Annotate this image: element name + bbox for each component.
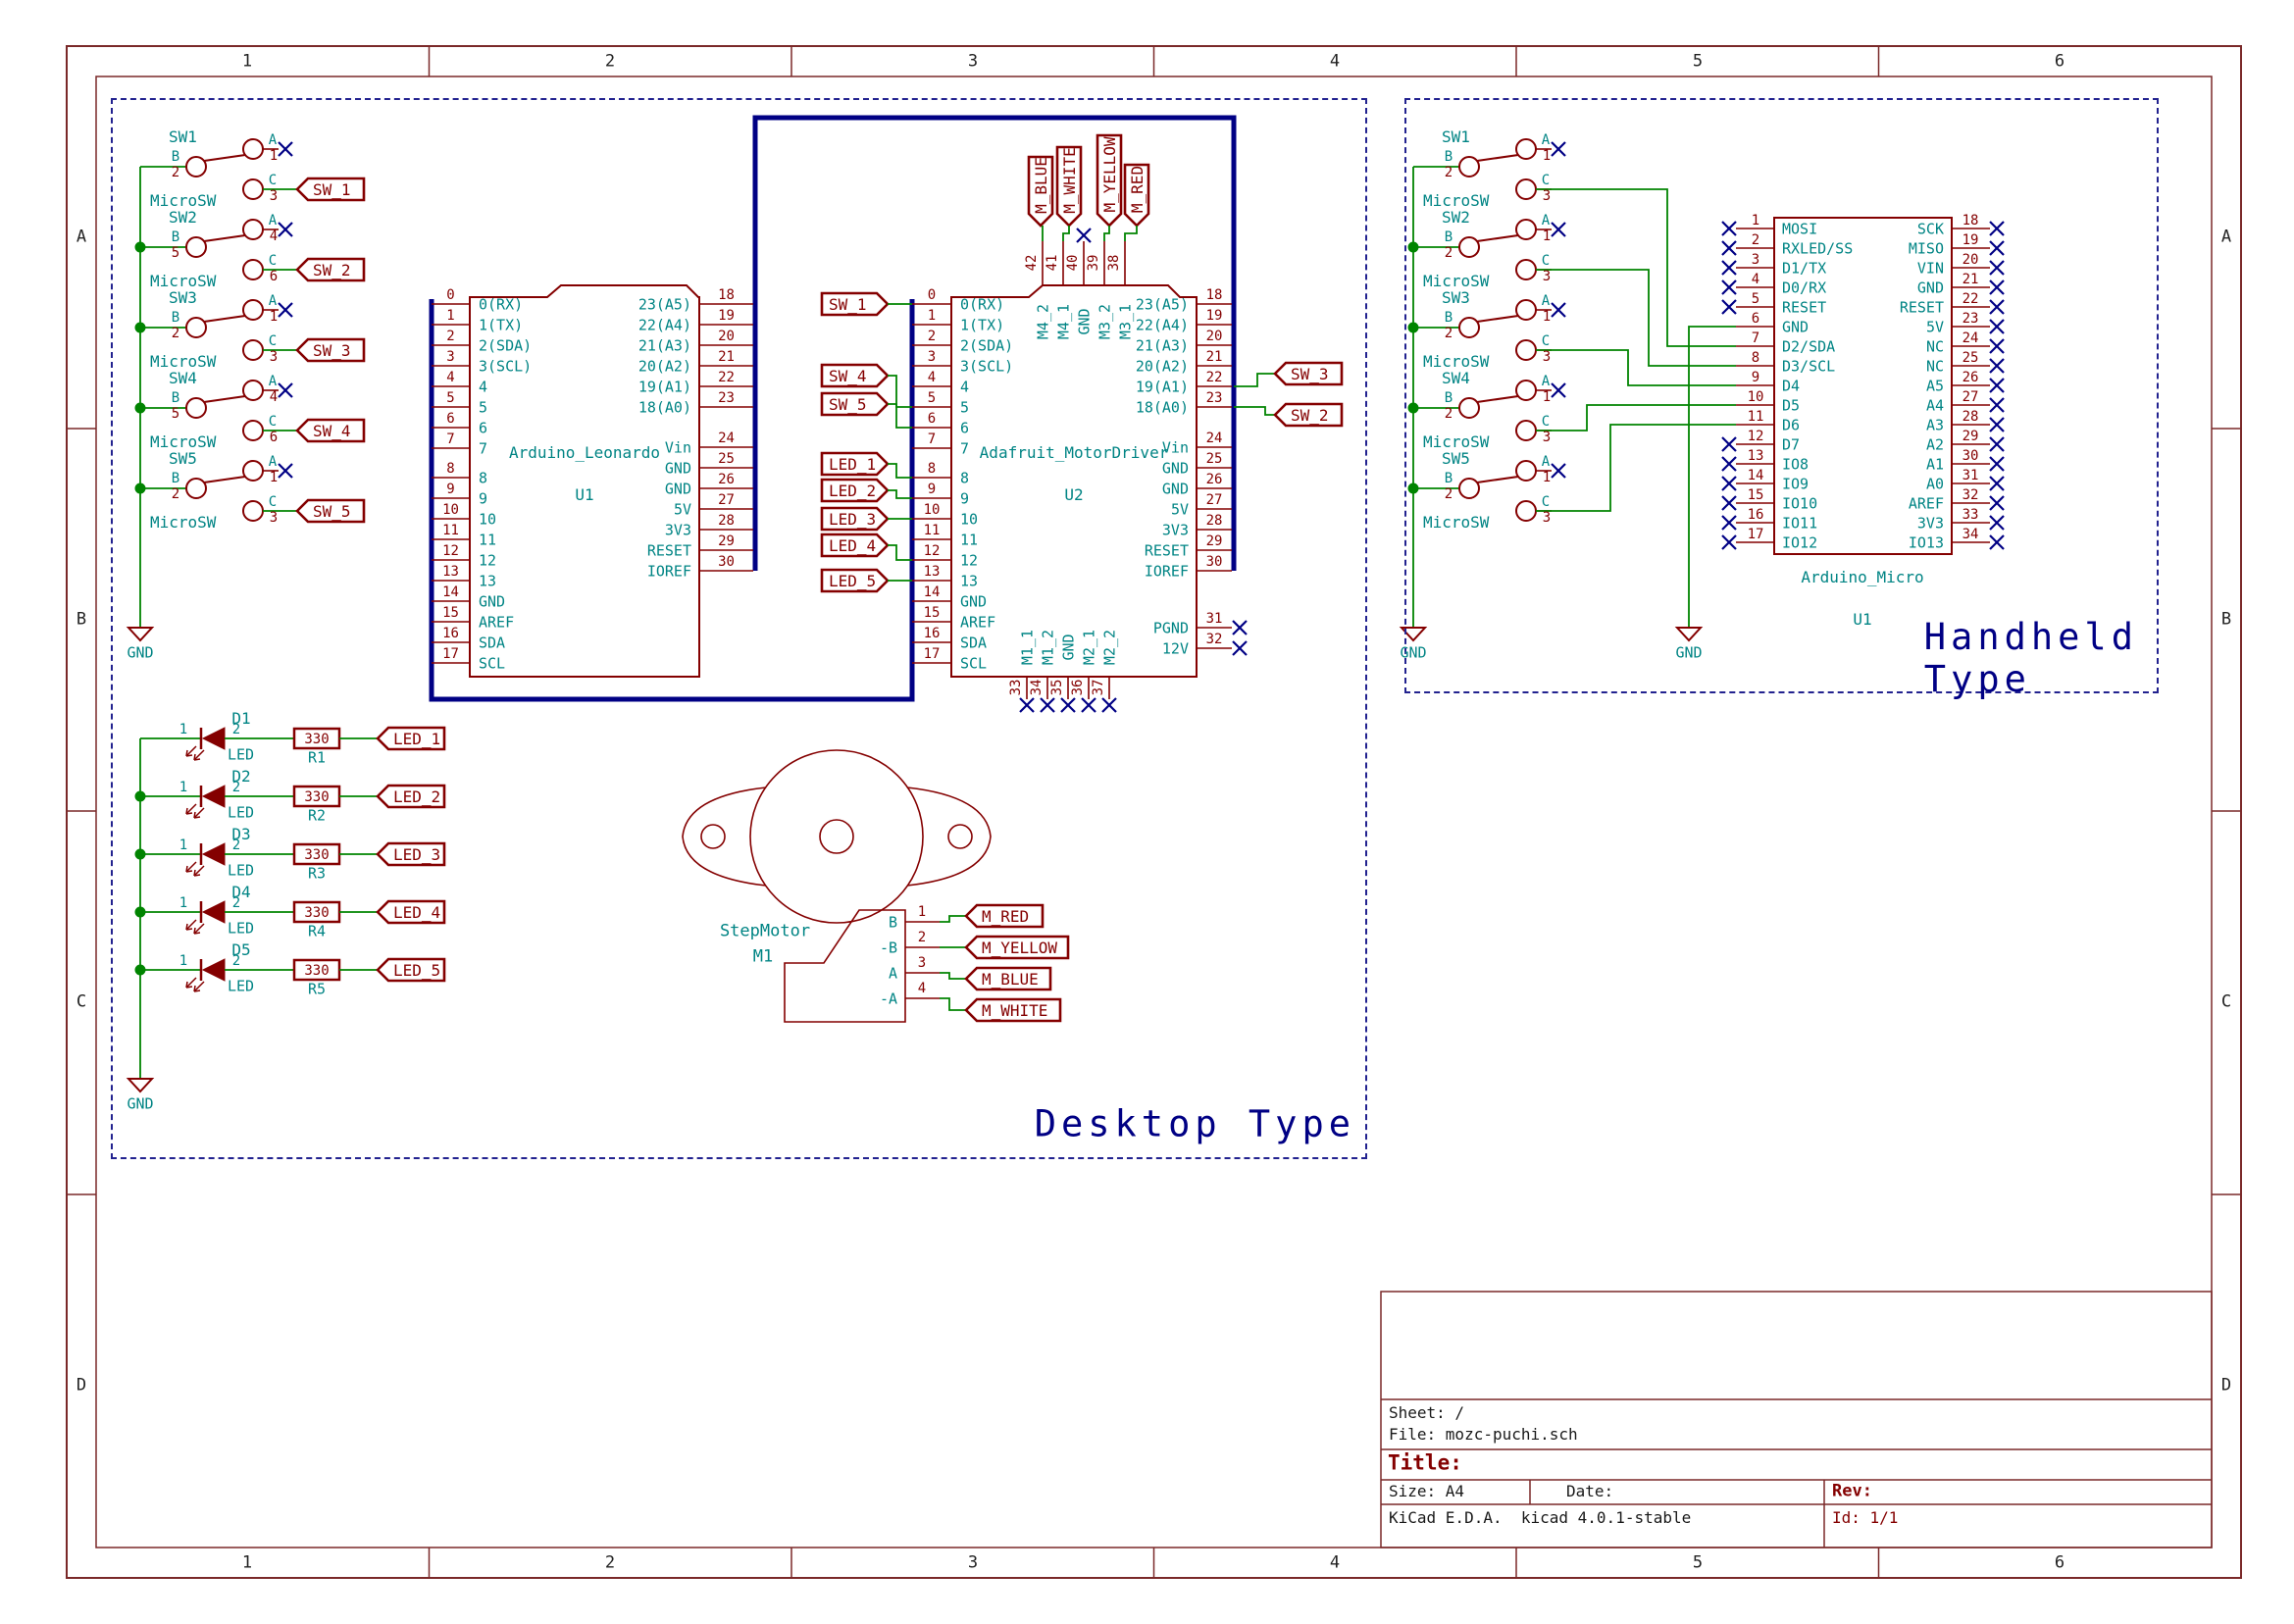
pin-number: 21 <box>718 350 735 364</box>
pin-name: 3V3 <box>665 524 691 538</box>
pin-number: 11 <box>924 524 941 537</box>
pin-number: 14 <box>924 585 941 599</box>
pin-number: 13 <box>924 565 941 579</box>
net-label: M_RED <box>982 909 1029 925</box>
pin-letter: B <box>172 391 179 405</box>
net-label: LED_3 <box>393 847 440 863</box>
pin-number: 10 <box>924 503 941 517</box>
pin-name: 9 <box>960 492 969 507</box>
pin-letter: C <box>269 174 277 187</box>
pin-number: 40 <box>1066 255 1080 272</box>
pin-number: 18 <box>718 288 735 302</box>
pin-number: 1 <box>1543 471 1551 484</box>
pin-number: 2 <box>1445 246 1453 260</box>
pin-name: MISO <box>1909 242 1944 257</box>
pin-number: 32 <box>1963 488 1979 502</box>
pin-name: 4 <box>960 381 969 395</box>
pin-number: 17 <box>1748 528 1764 541</box>
pin-name: 0(RX) <box>960 298 1004 313</box>
pin-name: 12V <box>1162 642 1189 657</box>
resistor-value: 330 <box>304 733 329 746</box>
resistor-value: 330 <box>304 964 329 978</box>
pin-name: GND <box>1078 308 1093 334</box>
ruler-row-right: B <box>2221 612 2231 629</box>
pin-name: MOSI <box>1782 223 1817 237</box>
pin-number: 1 <box>179 896 187 910</box>
pin-name: M1_2 <box>1042 630 1056 665</box>
pin-name: D3/SCL <box>1782 360 1835 375</box>
pin-name: 19(A1) <box>1136 381 1189 395</box>
pin-number: 3 <box>918 956 926 970</box>
switch-ref: SW3 <box>1442 290 1470 306</box>
led-ref: D4 <box>231 885 250 900</box>
pin-number: 1 <box>1543 229 1551 243</box>
pin-name: NC <box>1926 340 1944 355</box>
resistor-ref: R5 <box>308 983 326 997</box>
ruler-col-top: 1 <box>242 54 252 71</box>
net-label: SW_5 <box>313 504 351 520</box>
led-ref: D3 <box>231 827 250 842</box>
pin-number: 16 <box>1748 508 1764 522</box>
pin-name: 9 <box>479 492 487 507</box>
pin-number: 8 <box>928 462 936 476</box>
ruler-col-bottom: 1 <box>242 1555 252 1572</box>
pin-name: 2(SDA) <box>479 339 532 354</box>
pin-name: Vin <box>665 441 691 456</box>
pin-number: 22 <box>718 371 735 384</box>
pin-name: 0(RX) <box>479 298 523 313</box>
net-label: M_BLUE <box>1034 157 1049 214</box>
pin-number: 13 <box>442 565 459 579</box>
pin-number: 26 <box>1963 371 1979 384</box>
pin-name: SCL <box>479 657 505 672</box>
pin-number: 4 <box>928 371 936 384</box>
pin-number: 29 <box>1963 430 1979 443</box>
ruler-col-top: 5 <box>1693 54 1703 71</box>
pin-name: 5V <box>1171 503 1189 518</box>
pin-name: IO11 <box>1782 517 1817 532</box>
pin-name: B <box>889 916 897 931</box>
pin-number: 2 <box>1445 166 1453 179</box>
pin-number: 23 <box>1963 312 1979 326</box>
pin-name: RESET <box>1782 301 1826 316</box>
pin-number: 1 <box>179 838 187 852</box>
led-value: LED <box>228 864 254 879</box>
pin-name: 21(A3) <box>638 339 691 354</box>
switch-value: MicroSW <box>150 193 216 209</box>
ruler-row-left: D <box>76 1378 86 1395</box>
pin-number: 3 <box>1543 511 1551 525</box>
pin-name: M2_1 <box>1083 630 1097 665</box>
switch-ref: SW4 <box>169 371 197 386</box>
pin-name: 4 <box>479 381 487 395</box>
pin-letter: B <box>1445 230 1453 244</box>
pin-number: 27 <box>718 493 735 507</box>
pin-number: 26 <box>1206 473 1223 486</box>
board-ref: U1 <box>575 487 593 503</box>
led-ref: D1 <box>231 711 250 727</box>
board-ref: U1 <box>1853 612 1871 628</box>
pin-number: 35 <box>1050 680 1064 696</box>
pin-number: 34 <box>1030 680 1044 696</box>
pin-name: SDA <box>960 636 987 651</box>
pin-letter: B <box>172 472 179 485</box>
pin-number: 9 <box>446 482 454 496</box>
net-label: LED_2 <box>829 483 876 499</box>
pin-number: 4 <box>446 371 454 384</box>
ruler-col-bottom: 3 <box>968 1555 978 1572</box>
pin-name: D2/SDA <box>1782 340 1835 355</box>
pin-name: SDA <box>479 636 505 651</box>
pin-number: 37 <box>1092 680 1105 696</box>
pin-number: 6 <box>270 431 278 444</box>
pin-name: -B <box>880 941 897 956</box>
pin-name: 5 <box>479 401 487 416</box>
titleblock-title: Title: <box>1388 1453 1462 1474</box>
pin-number: 12 <box>1748 430 1764 443</box>
board-ref: U2 <box>1064 487 1083 503</box>
ruler-col-top: 3 <box>968 54 978 71</box>
switch-value: MicroSW <box>1423 354 1489 370</box>
switch-value: MicroSW <box>150 274 216 289</box>
pin-name: D4 <box>1782 380 1800 394</box>
pin-number: 7 <box>928 432 936 446</box>
pin-number: 42 <box>1025 255 1039 272</box>
pin-number: 9 <box>1752 371 1759 384</box>
pin-letter: C <box>269 254 277 268</box>
led-value: LED <box>228 922 254 937</box>
pin-number: 8 <box>446 462 454 476</box>
pin-name: 5V <box>674 503 691 518</box>
pin-name: IO10 <box>1782 497 1817 512</box>
pin-name: M4_2 <box>1037 304 1051 339</box>
pin-number: 2 <box>1752 233 1759 247</box>
pin-number: 20 <box>1206 330 1223 343</box>
led-value: LED <box>228 806 254 821</box>
pin-number: 12 <box>924 544 941 558</box>
pin-number: 27 <box>1963 390 1979 404</box>
pin-number: 1 <box>928 309 936 323</box>
pin-name: 1(TX) <box>960 319 1004 333</box>
pin-number: 28 <box>718 514 735 528</box>
pin-name: 8 <box>960 472 969 486</box>
pin-number: 22 <box>1206 371 1223 384</box>
pin-letter: C <box>1542 495 1550 509</box>
pin-number: 14 <box>1748 469 1764 482</box>
pin-name: 21(A3) <box>1136 339 1189 354</box>
switch-value: MicroSW <box>150 434 216 450</box>
pin-name: GND <box>1782 321 1809 335</box>
pin-number: 2 <box>172 327 179 340</box>
pin-name: 20(A2) <box>638 360 691 375</box>
pin-number: 31 <box>1963 469 1979 482</box>
pin-name: VIN <box>1917 262 1944 277</box>
ruler-row-left: B <box>76 612 86 629</box>
pin-name: 5 <box>960 401 969 416</box>
pin-name: IOREF <box>1145 565 1189 580</box>
pin-name: 10 <box>479 513 496 528</box>
pin-name: D5 <box>1782 399 1800 414</box>
pin-letter: A <box>1542 294 1550 308</box>
pin-number: 3 <box>928 350 936 364</box>
pin-number: 5 <box>446 391 454 405</box>
pin-number: 3 <box>270 189 278 203</box>
pin-number: 14 <box>442 585 459 599</box>
switch-ref: SW4 <box>1442 371 1470 386</box>
switch-value: MicroSW <box>150 515 216 531</box>
net-label: SW_2 <box>313 263 351 279</box>
pin-number: 31 <box>1206 612 1223 626</box>
pin-name: M4_1 <box>1057 304 1072 339</box>
pin-letter: A <box>269 294 277 308</box>
pin-number: 2 <box>928 330 936 343</box>
pin-letter: B <box>172 150 179 164</box>
pin-number: 38 <box>1107 255 1121 272</box>
pin-letter: B <box>172 230 179 244</box>
net-label: M_YELLOW <box>982 940 1057 956</box>
pin-number: 5 <box>928 391 936 405</box>
switch-value: MicroSW <box>1423 515 1489 531</box>
pin-name: D6 <box>1782 419 1800 433</box>
pin-letter: C <box>269 334 277 348</box>
gnd-label: GND <box>1675 646 1702 661</box>
pin-number: 24 <box>1206 431 1223 445</box>
pin-number: 5 <box>1752 292 1759 306</box>
net-label: M_BLUE <box>982 972 1039 988</box>
net-label: SW_4 <box>829 369 867 384</box>
pin-letter: A <box>269 214 277 228</box>
titleblock-date: Date: <box>1566 1484 1613 1499</box>
pin-name: GND <box>479 595 505 610</box>
pin-number: 25 <box>1963 351 1979 365</box>
pin-number: 30 <box>1963 449 1979 463</box>
pin-number: 4 <box>1752 273 1759 286</box>
pin-number: 10 <box>1748 390 1764 404</box>
pin-number: 4 <box>270 390 278 404</box>
pin-name: D1/TX <box>1782 262 1826 277</box>
pin-letter: A <box>1542 455 1550 469</box>
pin-number: 3 <box>270 350 278 364</box>
pin-number: 1 <box>446 309 454 323</box>
pin-name: A0 <box>1926 478 1944 492</box>
pin-number: 28 <box>1963 410 1979 424</box>
pin-name: 6 <box>960 422 969 436</box>
pin-number: 34 <box>1963 528 1979 541</box>
pin-name: GND <box>665 462 691 477</box>
resistor-value: 330 <box>304 848 329 862</box>
net-label: SW_4 <box>313 424 351 439</box>
pin-number: 29 <box>1206 534 1223 548</box>
ruler-col-bottom: 5 <box>1693 1555 1703 1572</box>
pin-number: 6 <box>446 412 454 426</box>
led-ref: D2 <box>231 769 250 785</box>
switch-ref: SW2 <box>1442 210 1470 226</box>
net-label: M_WHITE <box>982 1003 1047 1019</box>
pin-number: 11 <box>442 524 459 537</box>
pin-number: 19 <box>1963 233 1979 247</box>
pin-name: 20(A2) <box>1136 360 1189 375</box>
pin-number: 1 <box>1543 310 1551 324</box>
pin-letter: A <box>269 375 277 388</box>
pin-name: M3_2 <box>1098 304 1113 339</box>
pin-number: 13 <box>1748 449 1764 463</box>
pin-number: 19 <box>718 309 735 323</box>
pin-name: PGND <box>1153 622 1189 636</box>
pin-number: 1 <box>270 310 278 324</box>
pin-number: 2 <box>446 330 454 343</box>
group-caption-desktop: Desktop Type <box>1035 1103 1355 1145</box>
pin-letter: A <box>269 133 277 147</box>
switch-ref: SW5 <box>169 451 197 467</box>
pin-number: 6 <box>270 270 278 283</box>
pin-letter: C <box>1542 174 1550 187</box>
pin-number: 3 <box>1543 350 1551 364</box>
pin-letter: B <box>1445 150 1453 164</box>
pin-name: RXLED/SS <box>1782 242 1853 257</box>
switch-ref: SW5 <box>1442 451 1470 467</box>
pin-letter: B <box>1445 391 1453 405</box>
ruler-col-top: 6 <box>2055 54 2065 71</box>
pin-name: 7 <box>479 442 487 457</box>
pin-name: 3V3 <box>1162 524 1189 538</box>
pin-number: 25 <box>718 452 735 466</box>
pin-name: 19(A1) <box>638 381 691 395</box>
pin-number: 1 <box>1752 214 1759 228</box>
pin-name: GND <box>665 482 691 497</box>
switch-value: MicroSW <box>1423 274 1489 289</box>
pin-name: 22(A4) <box>638 319 691 333</box>
pin-name: 13 <box>960 575 978 589</box>
resistor-ref: R4 <box>308 925 326 939</box>
pin-number: 2 <box>172 487 179 501</box>
pin-number: 29 <box>718 534 735 548</box>
switch-ref: SW3 <box>169 290 197 306</box>
pin-name: M3_1 <box>1119 304 1134 339</box>
pin-name: SCL <box>960 657 987 672</box>
pin-number: 0 <box>928 288 936 302</box>
pin-number: 19 <box>1206 309 1223 323</box>
group-box-handheld <box>1404 98 2159 693</box>
titleblock-size: Size: A4 <box>1389 1484 1464 1499</box>
pin-number: 18 <box>1963 214 1979 228</box>
pin-number: 3 <box>446 350 454 364</box>
pin-number: 1 <box>1543 390 1551 404</box>
pin-name: IO13 <box>1909 536 1944 551</box>
pin-number: 30 <box>1206 555 1223 569</box>
led-value: LED <box>228 748 254 763</box>
led-value: LED <box>228 980 254 994</box>
schematic-sheet: Desktop Type Handheld Type Sheet: / File… <box>0 0 2294 1624</box>
pin-number: 4 <box>918 982 926 995</box>
pin-name: NC <box>1926 360 1944 375</box>
net-label: SW_2 <box>1291 408 1329 424</box>
pin-number: 23 <box>1206 391 1223 405</box>
pin-name: SCK <box>1917 223 1944 237</box>
board-value: Adafruit_MotorDriver <box>980 445 1169 461</box>
pin-name: M1_1 <box>1021 630 1036 665</box>
pin-number: 27 <box>1206 493 1223 507</box>
titleblock-kicad: KiCad E.D.A. kicad 4.0.1-stable <box>1389 1510 1691 1526</box>
pin-name: 8 <box>479 472 487 486</box>
ruler-row-left: C <box>76 994 86 1011</box>
pin-number: 24 <box>718 431 735 445</box>
pin-number: 21 <box>1963 273 1979 286</box>
pin-number: 23 <box>718 391 735 405</box>
ruler-col-bottom: 4 <box>1330 1555 1340 1572</box>
pin-name: D7 <box>1782 438 1800 453</box>
pin-name: 6 <box>479 422 487 436</box>
ruler-col-top: 2 <box>605 54 615 71</box>
net-label: SW_3 <box>1291 367 1329 382</box>
pin-number: 28 <box>1206 514 1223 528</box>
net-label: M_WHITE <box>1062 147 1078 213</box>
pin-letter: A <box>1542 214 1550 228</box>
net-label: LED_1 <box>393 732 440 747</box>
ruler-col-top: 4 <box>1330 54 1340 71</box>
net-label: SW_1 <box>829 297 867 313</box>
pin-name: 18(A0) <box>1136 401 1189 416</box>
switch-ref: SW1 <box>1442 129 1470 145</box>
pin-number: 15 <box>442 606 459 620</box>
pin-name: -A <box>880 992 897 1007</box>
pin-number: 2 <box>1445 487 1453 501</box>
pin-name: AREF <box>1909 497 1944 512</box>
pin-name: A2 <box>1926 438 1944 453</box>
net-label: SW_5 <box>829 397 867 413</box>
pin-number: 1 <box>270 471 278 484</box>
ruler-row-right: C <box>2221 994 2231 1011</box>
pin-name: GND <box>1917 281 1944 296</box>
pin-number: 6 <box>928 412 936 426</box>
pin-name: IO8 <box>1782 458 1809 473</box>
ruler-row-right: A <box>2221 229 2231 246</box>
pin-number: 17 <box>442 647 459 661</box>
pin-number: 11 <box>1748 410 1764 424</box>
pin-name: IOREF <box>647 565 691 580</box>
pin-number: 1 <box>179 781 187 794</box>
pin-name: RESET <box>647 544 691 559</box>
pin-name: 7 <box>960 442 969 457</box>
pin-number: 1 <box>1543 149 1551 163</box>
pin-name: GND <box>1062 634 1077 660</box>
pin-number: 41 <box>1045 255 1059 272</box>
pin-number: 3 <box>1543 189 1551 203</box>
pin-number: 2 <box>172 166 179 179</box>
net-label: SW_3 <box>313 343 351 359</box>
pin-number: 32 <box>1206 633 1223 646</box>
switch-ref: SW1 <box>169 129 197 145</box>
pin-name: 3(SCL) <box>479 360 532 375</box>
pin-number: 5 <box>172 246 179 260</box>
pin-number: 36 <box>1071 680 1085 696</box>
pin-number: 24 <box>1963 331 1979 345</box>
pin-name: IO12 <box>1782 536 1817 551</box>
motor-ref: M1 <box>753 949 773 966</box>
pin-name: GND <box>1162 462 1189 477</box>
pin-number: 20 <box>1963 253 1979 267</box>
led-ref: D5 <box>231 942 250 958</box>
pin-name: 3V3 <box>1917 517 1944 532</box>
ruler-row-right: D <box>2221 1378 2231 1395</box>
pin-number: 9 <box>928 482 936 496</box>
pin-number: 33 <box>1963 508 1979 522</box>
pin-number: 2 <box>1445 407 1453 421</box>
pin-letter: C <box>1542 254 1550 268</box>
resistor-value: 330 <box>304 790 329 804</box>
pin-number: 33 <box>1009 680 1023 696</box>
pin-name: D0/RX <box>1782 281 1826 296</box>
pin-number: 12 <box>442 544 459 558</box>
